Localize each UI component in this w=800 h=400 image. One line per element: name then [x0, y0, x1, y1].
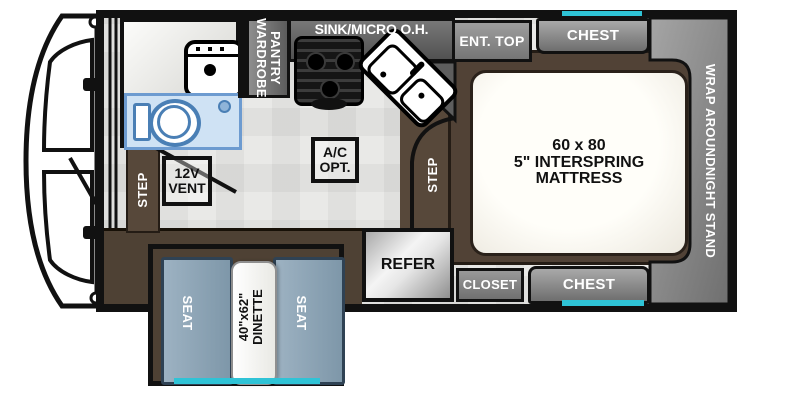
- mattress-size-label: 60 x 80: [552, 138, 605, 155]
- window-bottom: [562, 300, 644, 306]
- ent-top-label: ENT. TOP: [459, 34, 524, 49]
- overhead-label: SINK/MICRO O.H.: [288, 21, 455, 37]
- closet-label: CLOSET: [463, 278, 518, 292]
- dinette-seat-right: [273, 257, 345, 385]
- mattress-word-label: MATTRESS: [536, 171, 623, 188]
- wardrobe-pantry-label: PANTRY WARDROBE: [250, 20, 286, 96]
- window-slideout: [174, 378, 320, 384]
- bathroom-sink-icon: [184, 40, 244, 98]
- step-center-label: STEP: [425, 130, 441, 220]
- step-center-label-text: STEP: [426, 157, 440, 192]
- step-left-label-text: STEP: [136, 172, 150, 207]
- seat-left-label: SEAT: [179, 255, 195, 371]
- chest-bottom-label: CHEST: [563, 277, 615, 293]
- refer-label: REFER: [381, 257, 435, 274]
- mattress: 60 x 80 5" INTERSPRING MATTRESS: [470, 70, 688, 256]
- vent-12v-box: 12V VENT: [162, 156, 212, 206]
- stove-icon: [294, 36, 364, 106]
- chest-top-cabinet: CHEST: [536, 18, 650, 54]
- vent-label-line2: VENT: [168, 181, 205, 196]
- ent-top-cabinet: ENT. TOP: [452, 20, 532, 62]
- bathroom: [120, 18, 240, 148]
- ac-opt-box: A/C OPT.: [311, 137, 359, 183]
- nightstand-label: WRAP AROUNDNIGHT STAND: [701, 36, 719, 286]
- dinette-table-label: 40"x62" DINETTE: [234, 259, 268, 375]
- shower-head-icon: [218, 100, 231, 113]
- chest-bottom-cabinet: CHEST: [528, 266, 650, 304]
- step-left-label: STEP: [135, 150, 151, 230]
- floor-plan: 60 x 80 5" INTERSPRING MATTRESS WRAP ARO…: [0, 0, 800, 400]
- nightstand-label-text: WRAP AROUNDNIGHT STAND: [703, 64, 717, 258]
- refer-appliance: REFER: [362, 228, 454, 302]
- wardrobe-label-text: WARDROBE: [254, 18, 268, 98]
- chest-top-label: CHEST: [567, 28, 619, 44]
- tub-shower: [124, 93, 242, 150]
- dinette-size-text: 40"x62": [237, 293, 251, 341]
- seat-left-label-text: SEAT: [180, 296, 194, 331]
- overhead-label-text: SINK/MICRO O.H.: [315, 22, 429, 37]
- closet-cabinet: CLOSET: [456, 268, 524, 302]
- mattress-type-label: 5" INTERSPRING: [514, 155, 644, 172]
- dinette-seat-left: [161, 257, 233, 385]
- vent-label-line1: 12V: [175, 166, 200, 181]
- pantry-label-text: PANTRY: [268, 31, 282, 85]
- window-top: [562, 11, 642, 16]
- seat-right-label: SEAT: [293, 255, 309, 371]
- ac-label-line2: OPT.: [319, 160, 350, 175]
- ac-label-line1: A/C: [323, 145, 347, 160]
- dinette-word-text: DINETTE: [251, 289, 265, 345]
- seat-right-label-text: SEAT: [294, 296, 308, 331]
- toilet-seat-icon: [157, 105, 191, 139]
